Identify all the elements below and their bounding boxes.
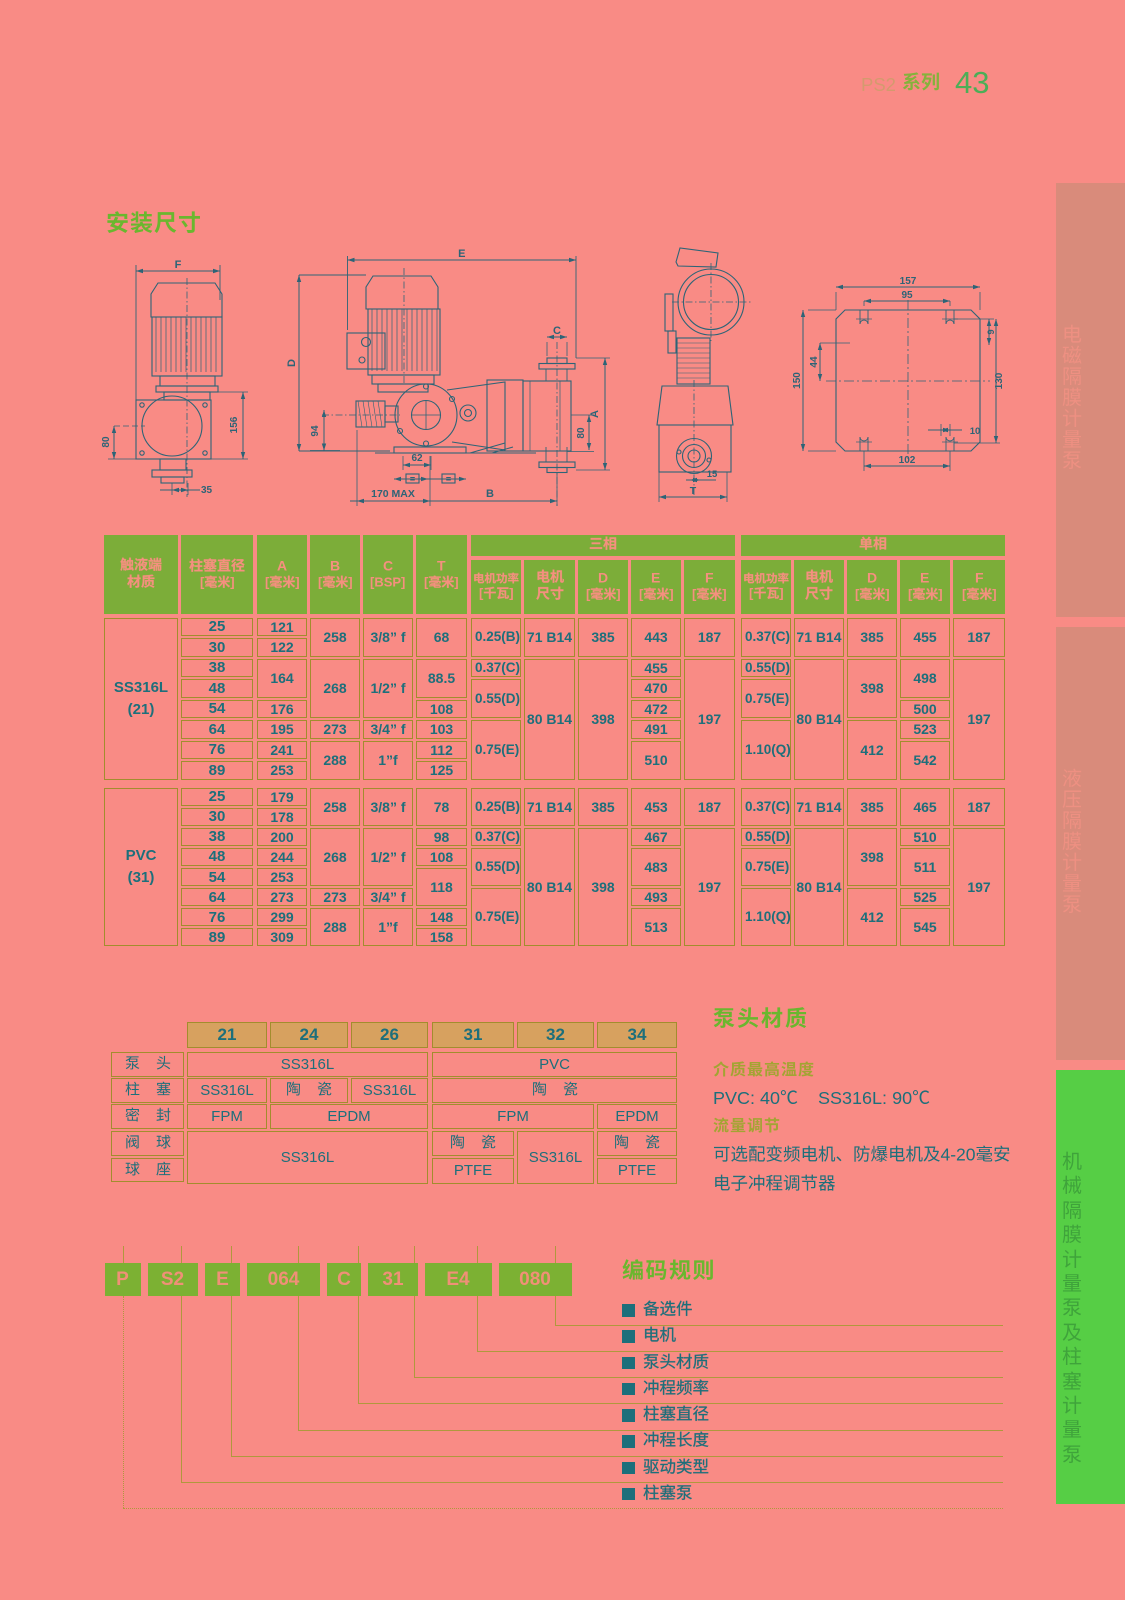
svg-text:170 MAX: 170 MAX (371, 488, 415, 500)
svg-text:[: [ (908, 587, 913, 602)
svg-text:10: 10 (970, 426, 981, 437)
svg-text:]: ] (885, 587, 889, 602)
svg-text:F: F (975, 569, 984, 585)
svg-text:[: [ (855, 587, 860, 602)
svg-text:D: D (286, 359, 298, 367)
svg-text:C: C (553, 325, 561, 337)
svg-text:95: 95 (901, 290, 913, 301)
svg-text:94: 94 (310, 425, 321, 437)
svg-text:T: T (437, 557, 446, 573)
svg-text:35: 35 (201, 485, 213, 496)
svg-text:62: 62 (411, 453, 423, 464)
svg-text:40: 40 (760, 1088, 780, 1108)
svg-text:SS316L:: SS316L: (818, 1088, 887, 1108)
svg-text:[: [ (318, 574, 323, 589)
svg-text:F: F (705, 569, 714, 585)
svg-text:B: B (486, 488, 494, 500)
svg-text:PVC:: PVC: (713, 1088, 755, 1108)
svg-text:D: D (598, 569, 608, 585)
svg-text:F: F (175, 259, 182, 271)
svg-text:]: ] (992, 587, 996, 602)
svg-text:T: T (690, 485, 697, 497)
svg-text:]: ] (722, 587, 726, 602)
svg-text:[: [ (479, 585, 484, 600)
svg-text:[: [ (962, 587, 967, 602)
svg-text:C: C (383, 557, 393, 573)
svg-text:D: D (867, 569, 877, 585)
svg-text:A: A (589, 410, 601, 418)
svg-text:]: ] (509, 585, 513, 600)
svg-text:=: = (446, 474, 451, 484)
svg-text:44: 44 (809, 356, 820, 368)
svg-text:E: E (458, 248, 465, 260)
svg-text:[: [ (749, 585, 754, 600)
svg-text:4-20: 4-20 (941, 1144, 976, 1164)
svg-text:130: 130 (994, 372, 1005, 389)
svg-text:150: 150 (792, 372, 803, 389)
svg-text:B: B (330, 557, 340, 573)
svg-text:]: ] (616, 587, 620, 602)
svg-text:102: 102 (899, 455, 916, 466)
svg-text:[: [ (586, 587, 591, 602)
svg-text:[: [ (424, 574, 429, 589)
svg-text:[BSP]: [BSP] (370, 574, 405, 589)
svg-text:]: ] (348, 574, 352, 589)
svg-text:[: [ (265, 574, 270, 589)
svg-text:]: ] (669, 587, 673, 602)
svg-text:E: E (920, 569, 929, 585)
svg-text:156: 156 (229, 416, 240, 433)
svg-text:80: 80 (101, 436, 112, 448)
svg-text:=: = (410, 474, 415, 484)
svg-text:80: 80 (576, 427, 587, 439)
svg-text:9: 9 (986, 329, 997, 334)
svg-text:[: [ (639, 587, 644, 602)
svg-text:]: ] (779, 585, 783, 600)
svg-text:90: 90 (892, 1088, 912, 1108)
svg-text:[: [ (200, 574, 205, 589)
svg-text:]: ] (295, 574, 299, 589)
svg-text:A: A (277, 557, 287, 573)
svg-text:15: 15 (707, 469, 718, 480)
svg-text:]: ] (230, 574, 234, 589)
svg-text:]: ] (938, 587, 942, 602)
svg-text:[: [ (692, 587, 697, 602)
svg-text:E: E (651, 569, 660, 585)
svg-text:157: 157 (900, 276, 917, 287)
svg-text:]: ] (454, 574, 458, 589)
